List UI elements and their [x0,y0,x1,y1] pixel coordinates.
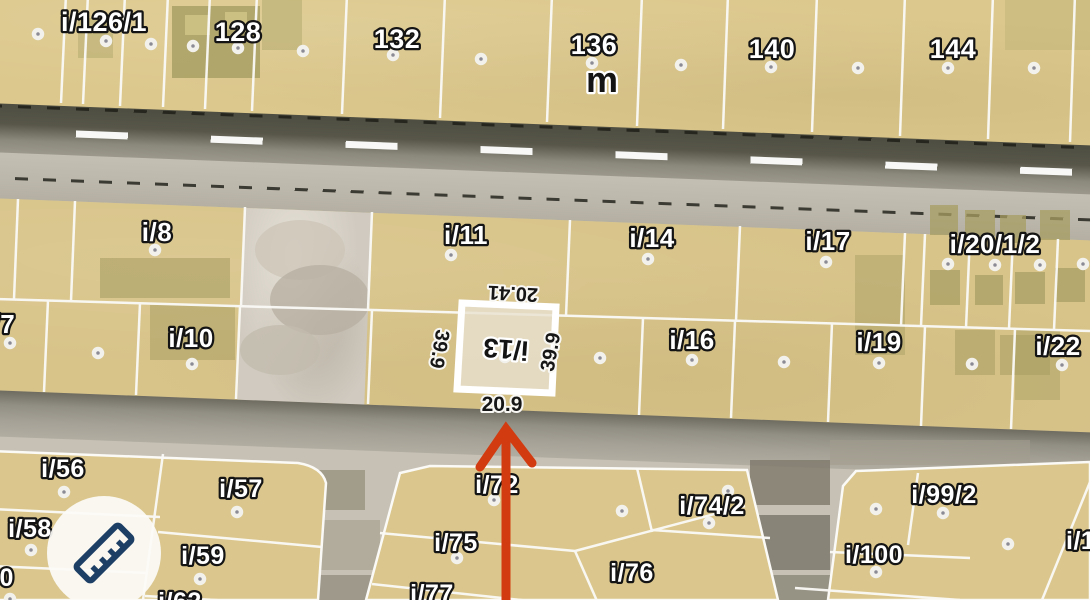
bottom-parcel-blocks [0,451,1090,600]
dimension-left: 39.9 [425,328,453,370]
parcel-label: i/76 [610,559,654,587]
parcel-label: i/14 [629,223,674,253]
parcel-label: i/99/2 [911,481,977,509]
parcel-label: i/72 [475,471,519,499]
map-canvas[interactable]: i/126/1 128 132 136 140 144 m i/8 i/11 i… [0,0,1090,600]
parcel-label: 128 [215,17,262,47]
parcel-label: i/10 [168,323,213,353]
parcel-label: i/74/2 [679,492,745,520]
parcel-label: i/100 [845,541,903,569]
parcel-label: i/77 [410,580,454,600]
parcel-label: i/59 [181,542,225,570]
parcel-label: i/19 [856,327,901,357]
parcel-label: i/56 [41,455,85,483]
parcel-label: i/58 [8,515,52,543]
parcel-label: 136 [571,30,618,60]
parcel-label: i/60 [0,564,14,592]
parcel-label: i/57 [219,475,263,503]
selected-parcel-label: i/13 [482,332,529,365]
parcel-label: i/101 [1066,527,1090,555]
parcel-label: i/17 [805,226,850,256]
parcel-label: 132 [374,24,421,54]
cadastral-map-overlay: i/126/1 128 132 136 140 144 m i/8 i/11 i… [0,0,1090,600]
parcel-label: i/62 [158,588,202,600]
street-label: m [586,59,618,100]
dimension-top: 20.41 [487,281,538,306]
parcel-label: i/11 [444,220,488,250]
parcel-label: i/8 [142,217,172,247]
ruler-icon [68,517,140,589]
parcel-label: i/16 [669,325,714,355]
measure-tool-button[interactable] [47,496,161,600]
parcel-label: i/126/1 [61,7,147,37]
parcel-label: i/75 [434,529,478,557]
parcel-label: 144 [930,34,977,64]
parcel-label: i/22 [1035,331,1080,361]
parcel-label: i/7 [0,309,15,339]
parcel-label: i/20/1/2 [950,229,1041,259]
dimension-bottom: 20.9 [482,393,523,416]
parcel-label: 140 [749,34,796,64]
